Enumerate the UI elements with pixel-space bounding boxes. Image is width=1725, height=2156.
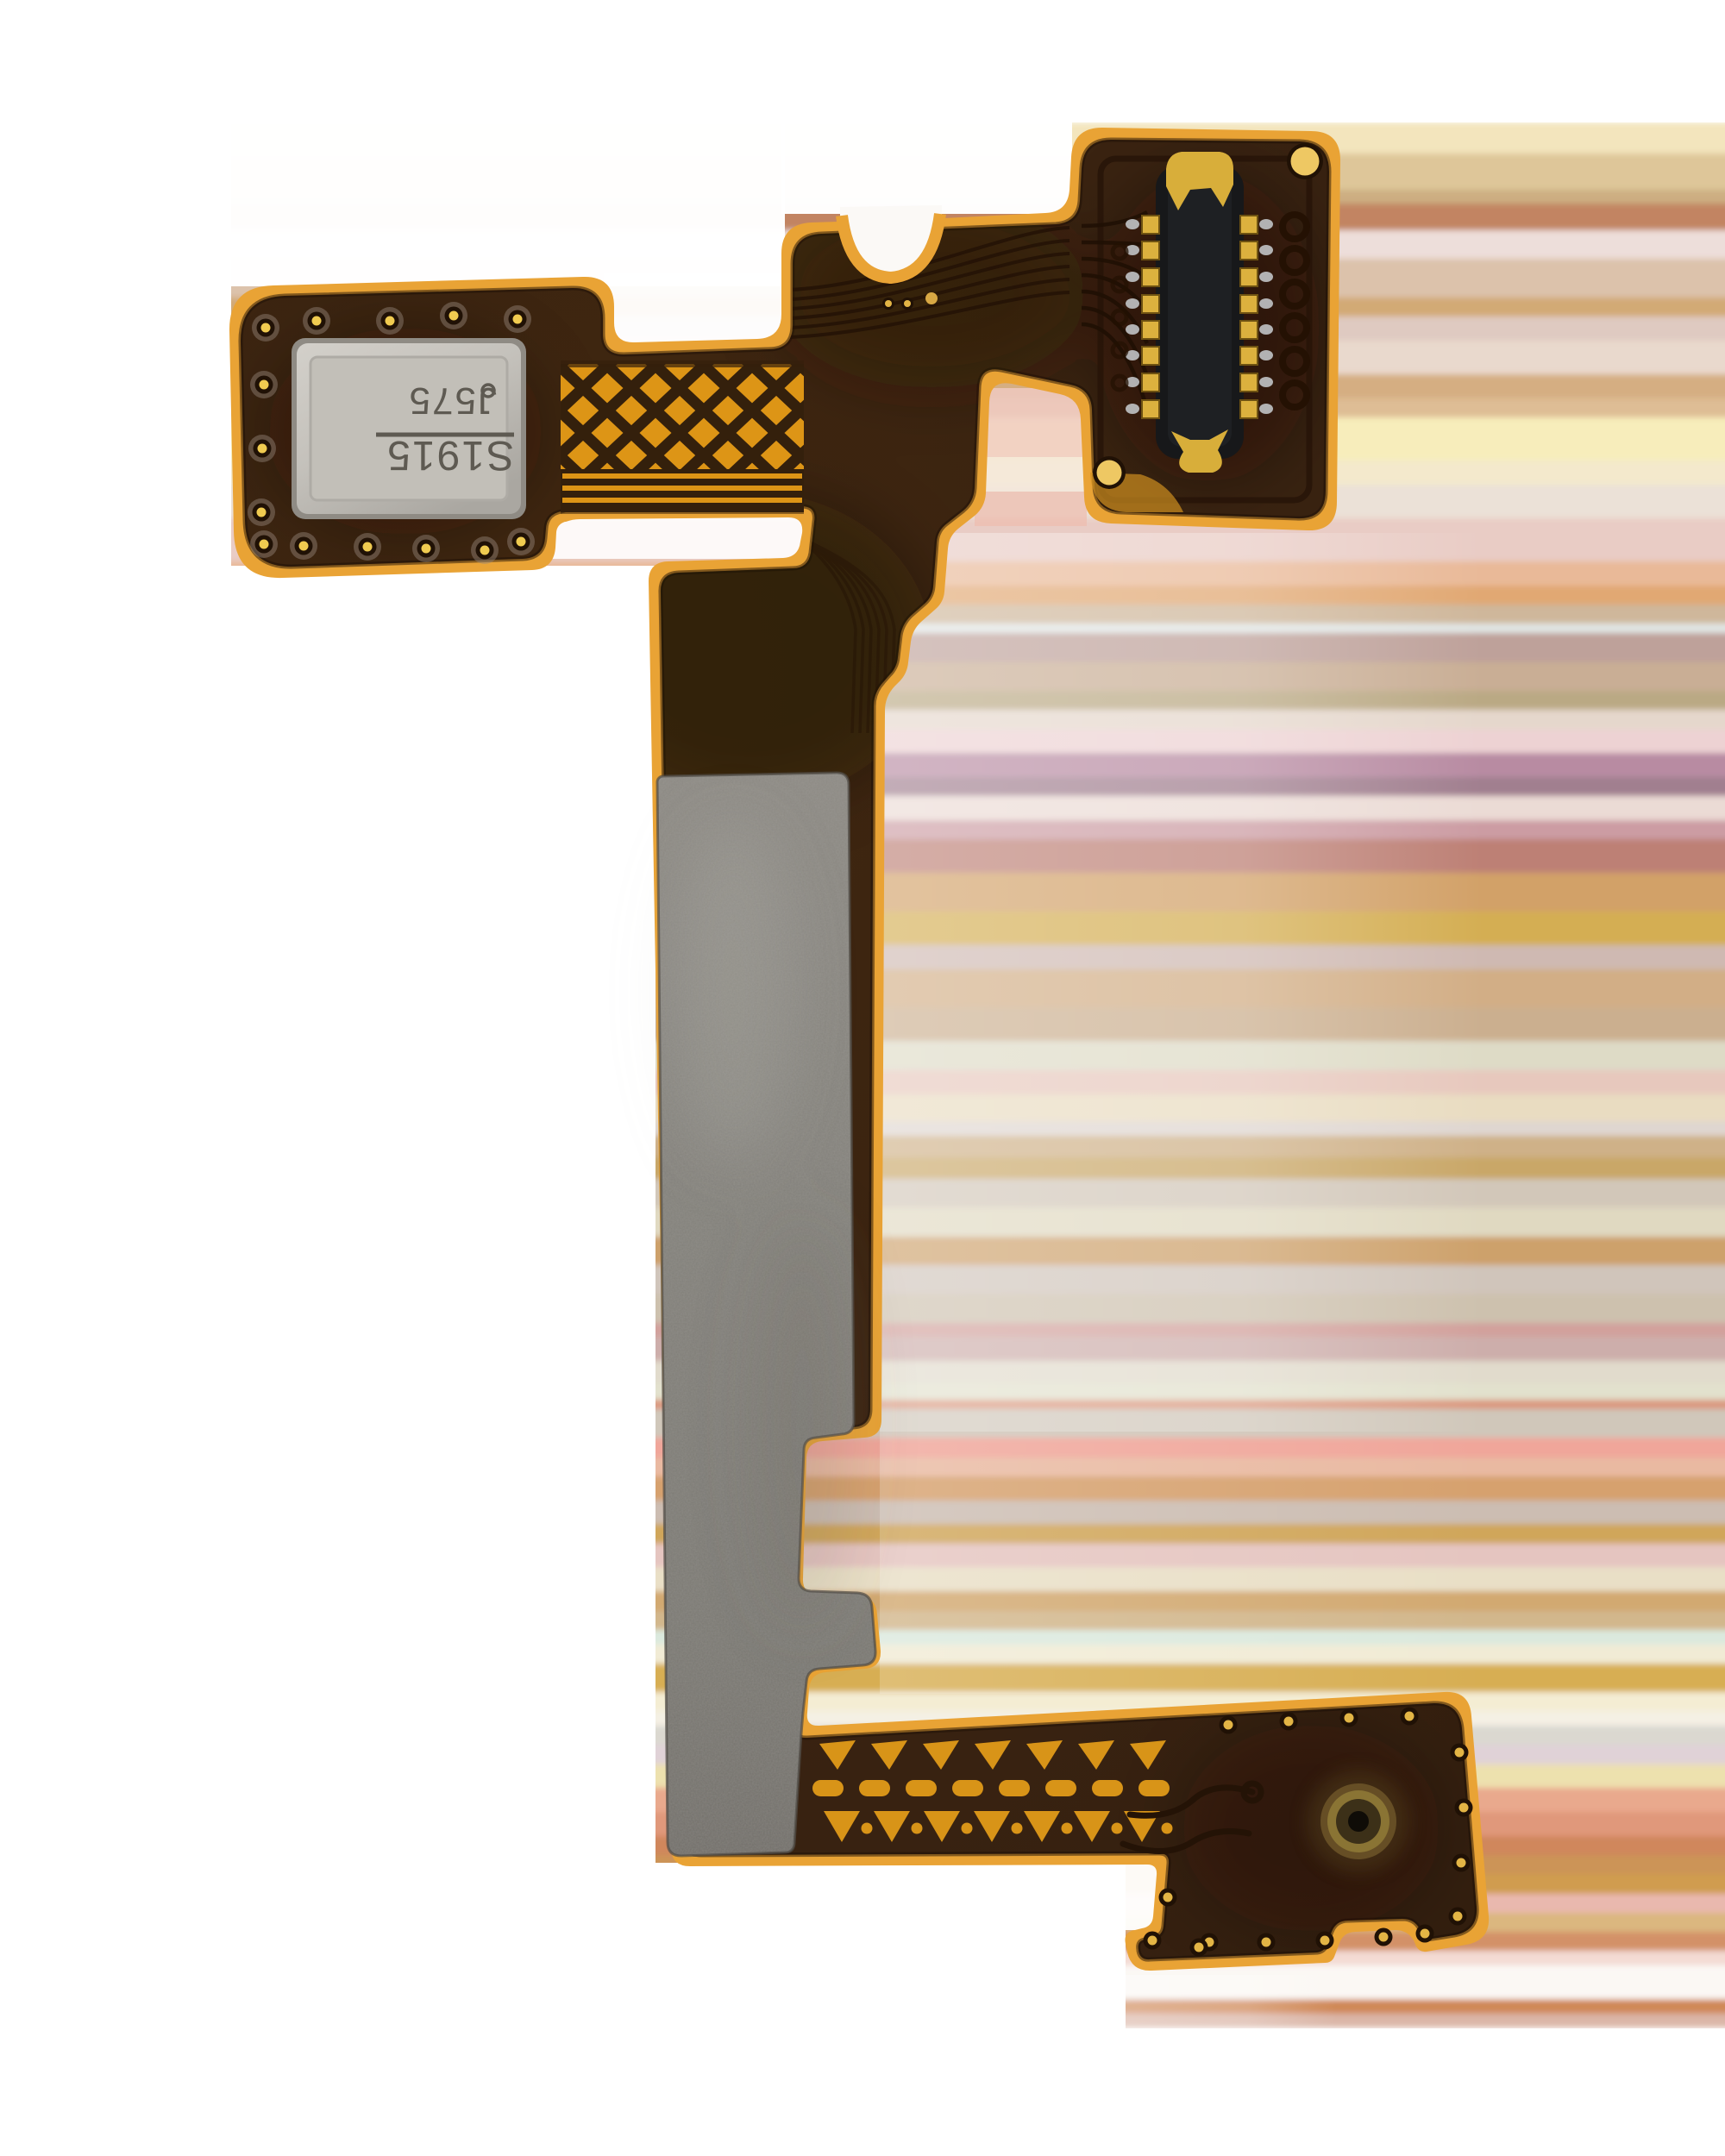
svg-text:S1915: S1915 [386, 432, 514, 478]
